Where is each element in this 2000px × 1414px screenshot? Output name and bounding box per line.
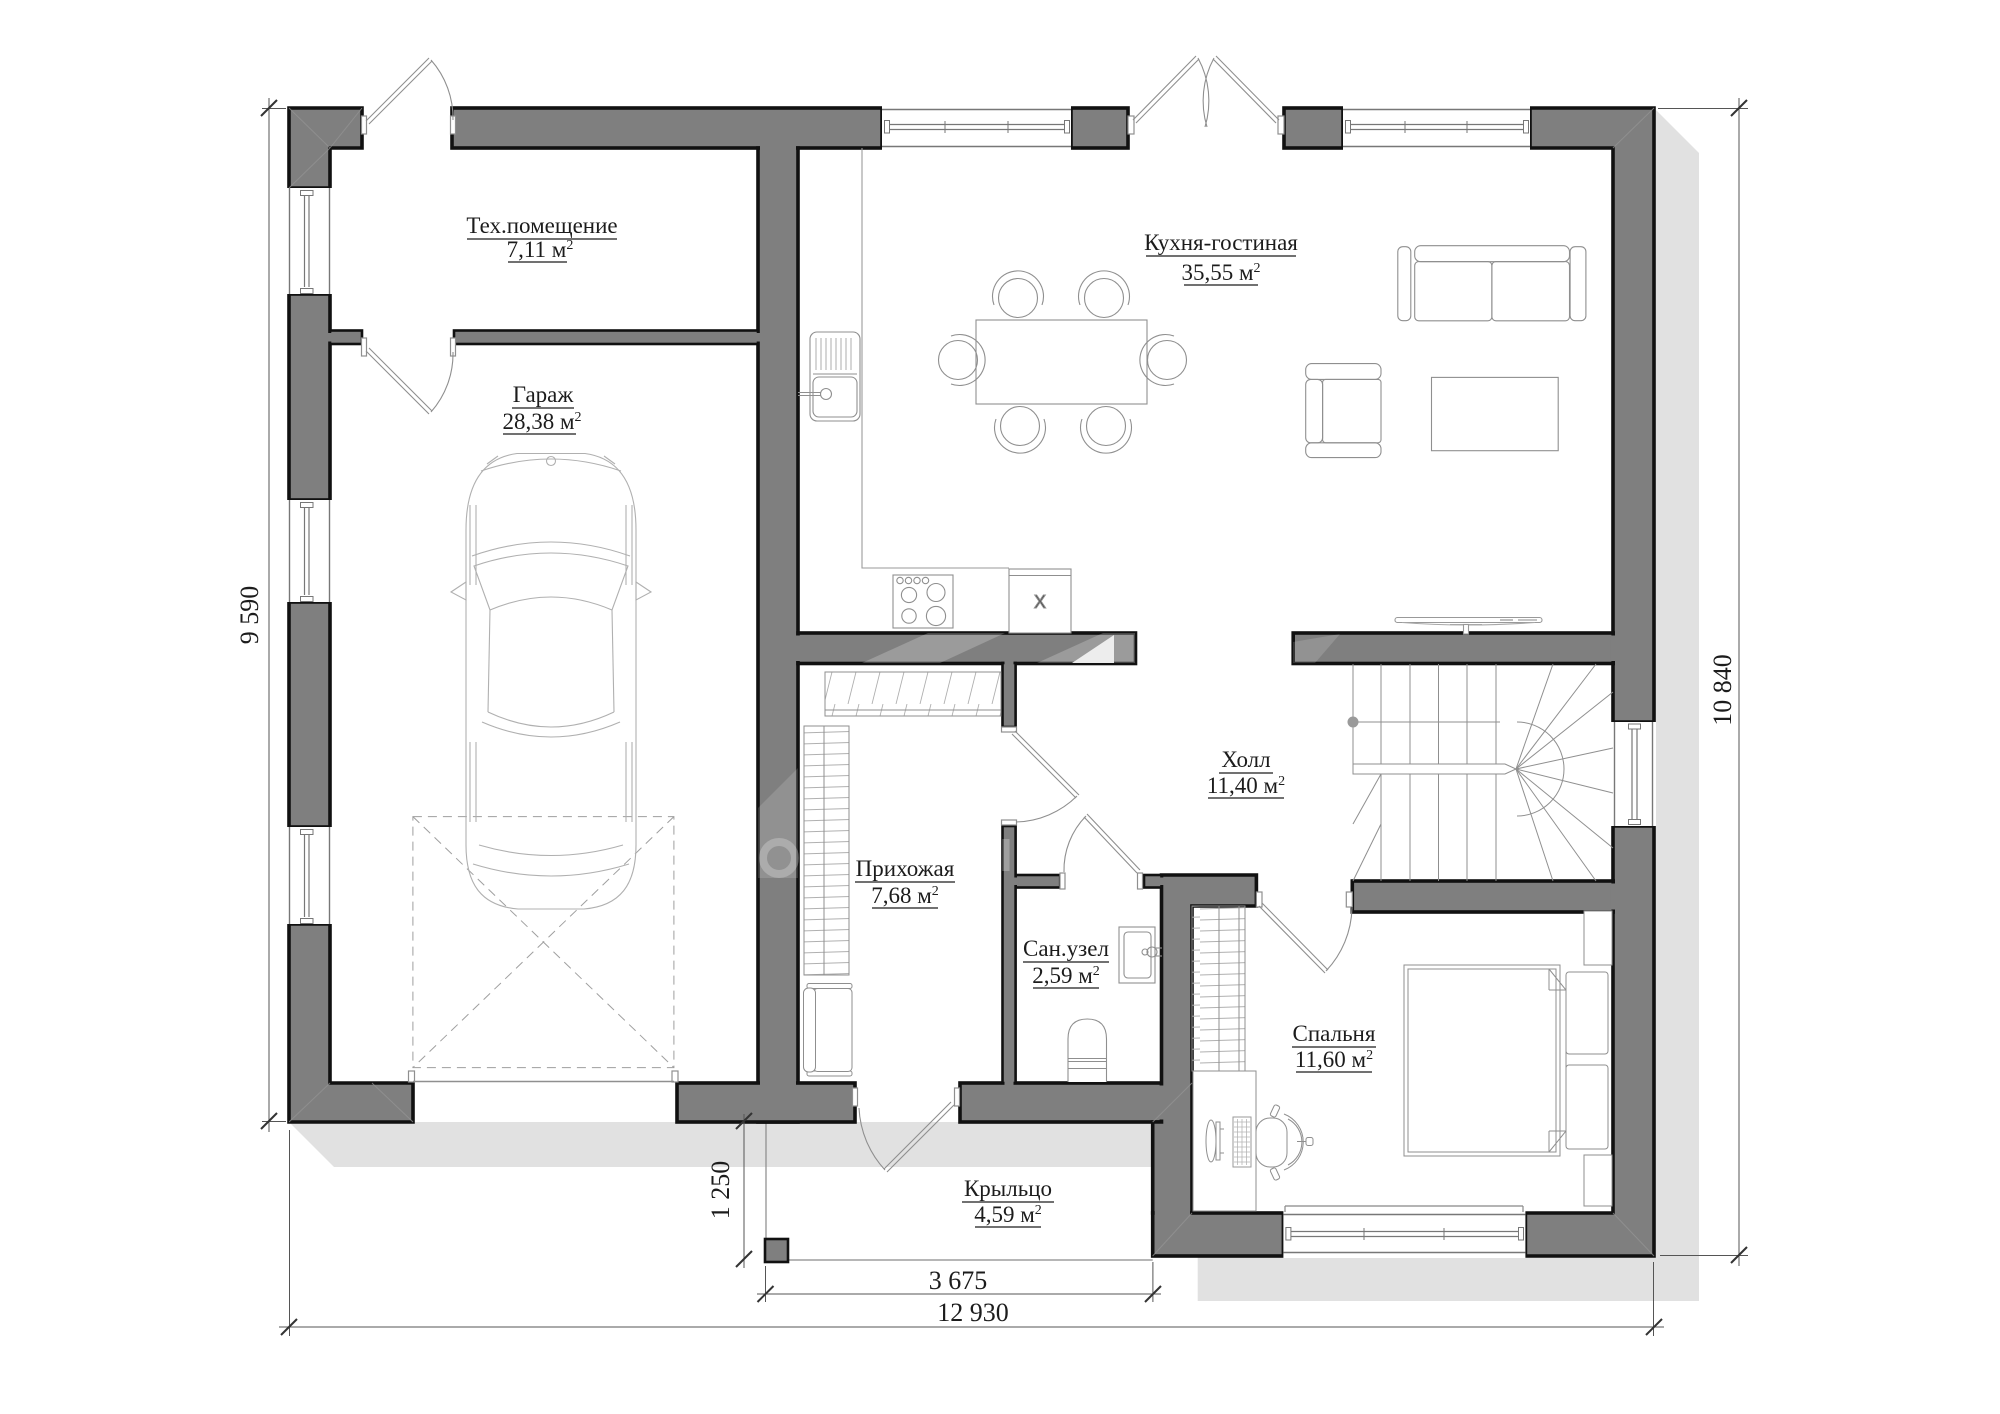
svg-text:Гараж: Гараж — [513, 382, 574, 407]
svg-text:9 590: 9 590 — [235, 586, 264, 645]
svg-text:10 840: 10 840 — [1708, 654, 1737, 726]
svg-text:7,11 м2: 7,11 м2 — [507, 237, 574, 262]
svg-text:11,40 м2: 11,40 м2 — [1207, 773, 1285, 798]
svg-text:28,38 м2: 28,38 м2 — [502, 409, 581, 434]
svg-text:Сан.узел: Сан.узел — [1023, 936, 1109, 961]
svg-text:12 930: 12 930 — [937, 1298, 1009, 1327]
svg-text:7,68 м2: 7,68 м2 — [871, 883, 939, 908]
svg-text:4,59 м2: 4,59 м2 — [974, 1202, 1042, 1227]
svg-text:Холл: Холл — [1221, 747, 1270, 772]
svg-text:Спальня: Спальня — [1293, 1021, 1376, 1046]
svg-text:1 250: 1 250 — [706, 1161, 735, 1220]
svg-text:2,59 м2: 2,59 м2 — [1032, 963, 1100, 988]
svg-text:X: X — [1034, 592, 1046, 612]
svg-text:35,55 м2: 35,55 м2 — [1181, 260, 1260, 285]
svg-text:11,60 м2: 11,60 м2 — [1295, 1047, 1373, 1072]
svg-text:3 675: 3 675 — [929, 1266, 988, 1295]
svg-text:Тех.помещение: Тех.помещение — [466, 213, 617, 238]
svg-text:Крыльцо: Крыльцо — [964, 1176, 1052, 1201]
svg-text:Прихожая: Прихожая — [856, 856, 955, 881]
svg-text:Кухня-гостиная: Кухня-гостиная — [1144, 230, 1298, 255]
